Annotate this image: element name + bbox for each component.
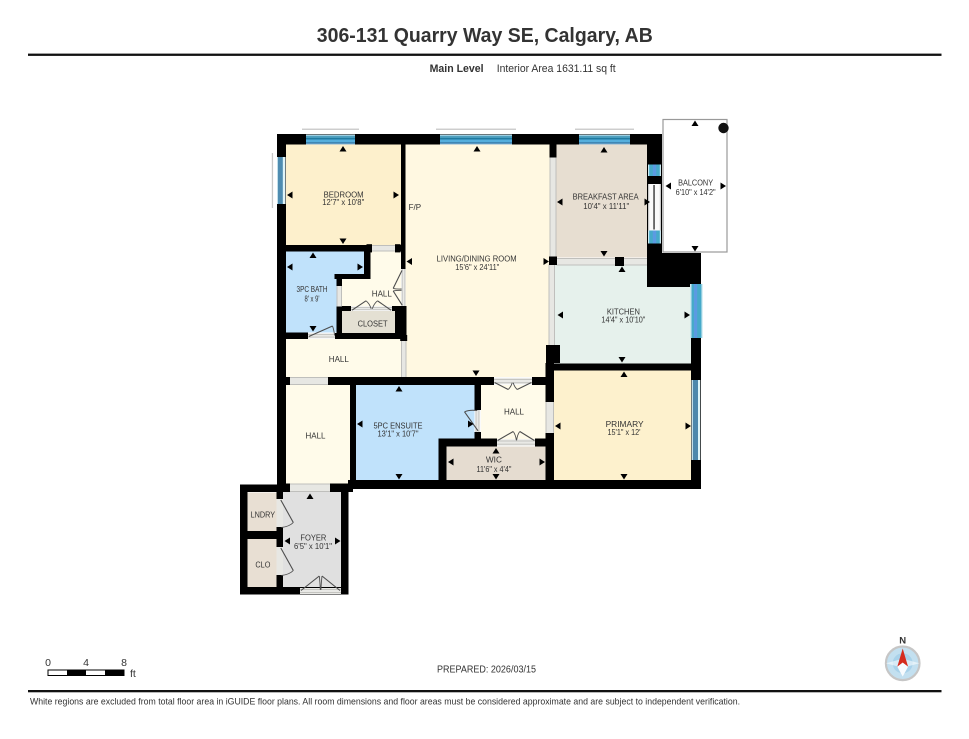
svg-text:Interior Area 1631.11 sq ft: Interior Area 1631.11 sq ft — [497, 63, 616, 75]
svg-text:CLOSET: CLOSET — [358, 319, 389, 329]
svg-text:14'4" x 10'10": 14'4" x 10'10" — [601, 314, 645, 324]
svg-text:11'6" x 4'4": 11'6" x 4'4" — [477, 464, 512, 474]
svg-text:HALL: HALL — [504, 406, 524, 416]
svg-text:15'1" x 12': 15'1" x 12' — [608, 427, 641, 437]
svg-text:PREPARED: 2026/03/15: PREPARED: 2026/03/15 — [437, 665, 536, 676]
svg-text:8: 8 — [121, 657, 127, 669]
svg-text:WIC: WIC — [486, 455, 502, 465]
svg-text:8' x 9': 8' x 9' — [305, 293, 320, 303]
svg-text:10'4" x 11'11": 10'4" x 11'11" — [583, 201, 629, 211]
svg-text:Main Level: Main Level — [430, 63, 484, 75]
svg-text:HALL: HALL — [329, 354, 349, 364]
svg-text:F/P: F/P — [409, 202, 422, 212]
svg-text:ft: ft — [130, 668, 136, 680]
svg-text:White regions are excluded fro: White regions are excluded from total fl… — [30, 697, 740, 707]
svg-text:CLO: CLO — [255, 559, 270, 569]
svg-text:HALL: HALL — [306, 430, 326, 440]
svg-text:306-131 Quarry Way SE, Calgary: 306-131 Quarry Way SE, Calgary, AB — [317, 25, 653, 47]
svg-text:LNDRY: LNDRY — [251, 509, 276, 519]
svg-text:6'10" x 14'2": 6'10" x 14'2" — [676, 187, 716, 197]
svg-text:13'1" x 10'7": 13'1" x 10'7" — [378, 429, 419, 439]
svg-text:6'5" x 10'1": 6'5" x 10'1" — [294, 541, 332, 551]
svg-text:BREAKFAST AREA: BREAKFAST AREA — [573, 191, 639, 201]
svg-text:12'7" x 10'8": 12'7" x 10'8" — [322, 197, 364, 207]
svg-text:HALL: HALL — [372, 288, 392, 298]
svg-text:15'6" x 24'11": 15'6" x 24'11" — [455, 262, 499, 272]
svg-text:N: N — [899, 636, 906, 647]
svg-text:0: 0 — [45, 657, 51, 669]
svg-text:4: 4 — [83, 657, 89, 669]
